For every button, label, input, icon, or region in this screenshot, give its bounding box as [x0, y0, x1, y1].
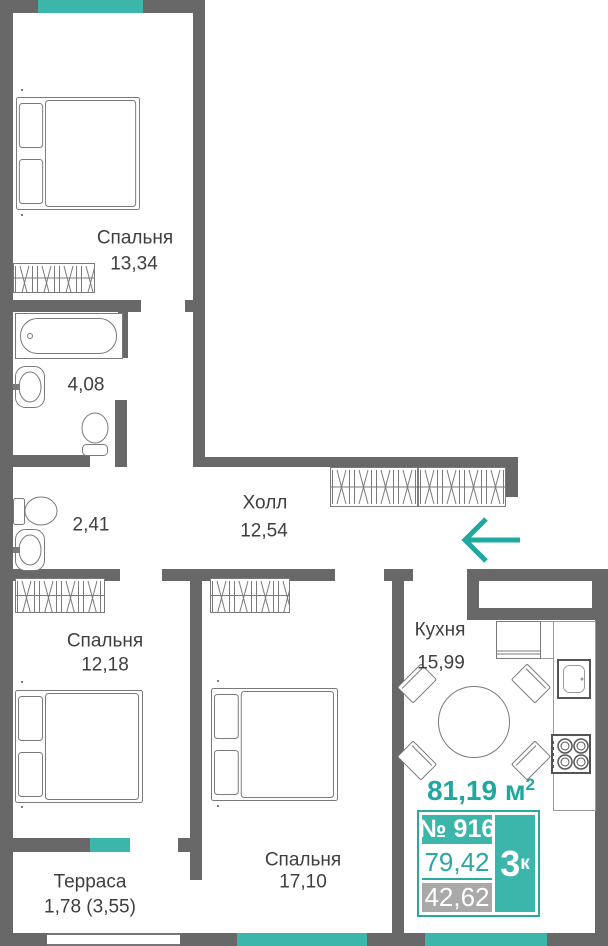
- wall-bedroom1-right: [193, 0, 205, 467]
- toilet-icon: [79, 411, 111, 457]
- marker-dot: [21, 214, 23, 216]
- wall-right: [595, 569, 608, 933]
- dining-table-icon: [438, 686, 510, 758]
- unit-rooms-sup: к: [520, 853, 530, 875]
- room-label-bedroom1-area: 13,34: [110, 255, 158, 274]
- unit-total-area-value: 79,42: [422, 847, 492, 880]
- bed-icon: [211, 688, 338, 801]
- wall-terrace-cap: [178, 838, 190, 852]
- marker-dot: [21, 806, 23, 808]
- room-label-bedroom2-name: Спальня: [67, 632, 143, 651]
- unit-rooms-badge: 3к: [495, 815, 535, 912]
- room-label-kitchen-name: Кухня: [415, 621, 466, 640]
- wardrobe-icon: [13, 263, 95, 293]
- window-terrace: [47, 933, 180, 946]
- sink-icon: [13, 529, 47, 571]
- room-label-bedroom3-name: Спальня: [265, 851, 341, 870]
- room-label-terrace-area: 1,78 (3,55): [44, 898, 136, 917]
- unit-card: № 916 79,42 42,62 3к: [417, 810, 540, 917]
- unit-number-badge: № 916: [422, 815, 492, 844]
- wall-terrace-top: [13, 838, 90, 852]
- unit-rooms-count: 3: [500, 846, 520, 882]
- duct-box-inner: [479, 581, 592, 608]
- wall-hall-top: [193, 457, 518, 467]
- stove-icon: [551, 734, 591, 774]
- unit-living-area-value: 42,62: [422, 883, 492, 912]
- wall-left: [0, 0, 13, 946]
- window-kitchen: [425, 933, 547, 946]
- total-area-label: 81,19 м2: [427, 775, 535, 807]
- room-label-kitchen-area: 15,99: [417, 654, 465, 673]
- wall-nub: [185, 300, 193, 312]
- entrance-arrow-icon: [458, 515, 524, 565]
- bed-icon: [15, 690, 143, 803]
- room-label-hall-area: 12,54: [240, 522, 288, 541]
- wardrobe-icon: [210, 578, 290, 613]
- wall-bath-stub: [115, 400, 127, 467]
- wall-hall-cap: [506, 457, 518, 497]
- room-label-bedroom3-area: 17,10: [279, 873, 327, 892]
- marker-dot: [21, 89, 23, 91]
- room-label-terrace-name: Терраса: [54, 873, 127, 892]
- room-label-wc-area: 2,41: [73, 516, 110, 535]
- total-area-sup: 2: [526, 775, 535, 794]
- total-area-value: 81,19 м: [427, 775, 526, 806]
- wardrobe-icon: [15, 578, 105, 613]
- wardrobe-icon: [330, 467, 506, 507]
- window-bedroom3: [237, 933, 367, 946]
- window-terrace-door: [90, 838, 130, 852]
- marker-dot: [21, 681, 23, 683]
- bed-icon: [16, 97, 140, 210]
- room-label-bathroom-area: 4,08: [68, 376, 105, 395]
- floor-plan: Спальня 13,34 4,08 2,41 Холл 12,54 Спаль…: [0, 0, 608, 946]
- sink-icon: [13, 366, 47, 408]
- wall-bedrooms-divider: [190, 569, 202, 880]
- room-label-bedroom1-name: Спальня: [97, 229, 173, 248]
- unit-card-left-column: № 916 79,42 42,62: [422, 815, 492, 912]
- bathtub-icon: [15, 313, 123, 359]
- marker-dot: [217, 680, 219, 682]
- toilet-icon: [13, 491, 60, 531]
- marker-dot: [217, 805, 219, 807]
- room-label-bedroom2-area: 12,18: [81, 656, 129, 675]
- room-label-hall-name: Холл: [243, 494, 288, 513]
- kitchen-sink-icon: [557, 659, 591, 699]
- window-bedroom1: [38, 0, 143, 13]
